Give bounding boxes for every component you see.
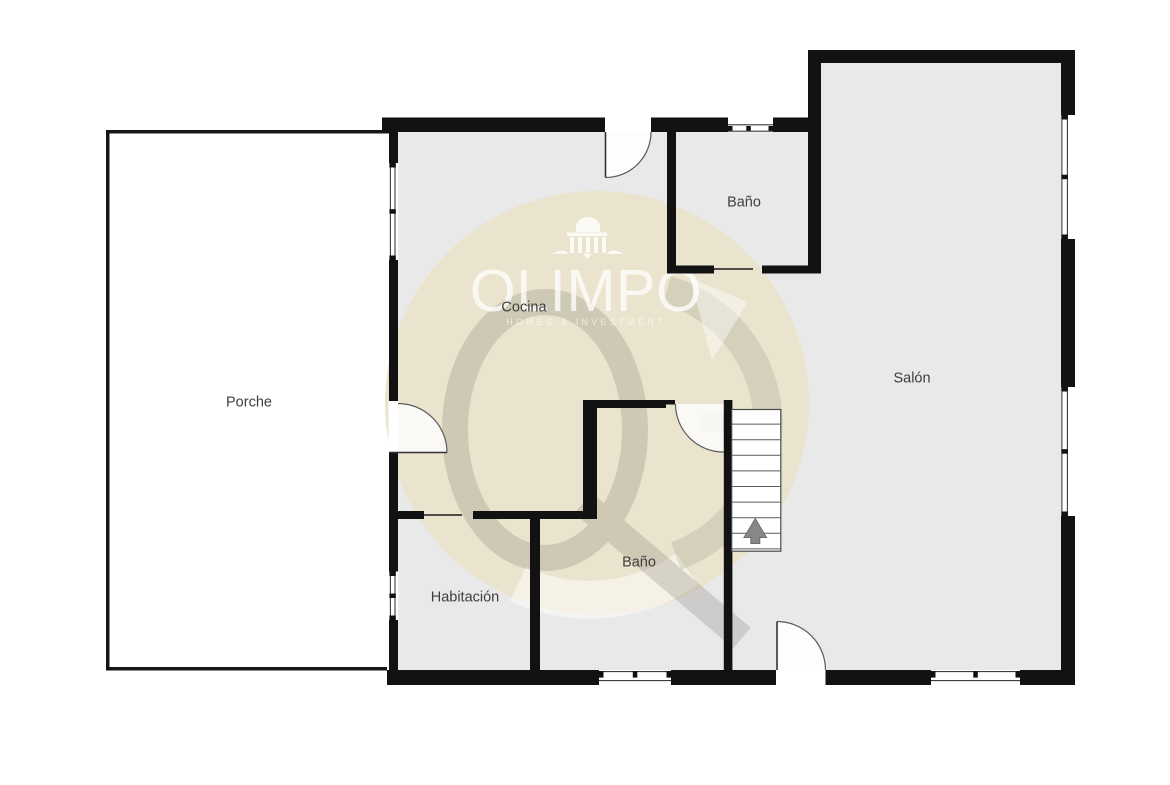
svg-text:Salón: Salón xyxy=(893,371,930,387)
svg-text:Baño: Baño xyxy=(727,195,761,211)
svg-text:Habitación: Habitación xyxy=(431,590,500,606)
svg-text:Cocina: Cocina xyxy=(501,300,547,316)
svg-text:Baño: Baño xyxy=(622,555,656,571)
svg-text:HOMES & INVESTMENT: HOMES & INVESTMENT xyxy=(506,317,666,327)
svg-text:Porche: Porche xyxy=(226,395,272,411)
